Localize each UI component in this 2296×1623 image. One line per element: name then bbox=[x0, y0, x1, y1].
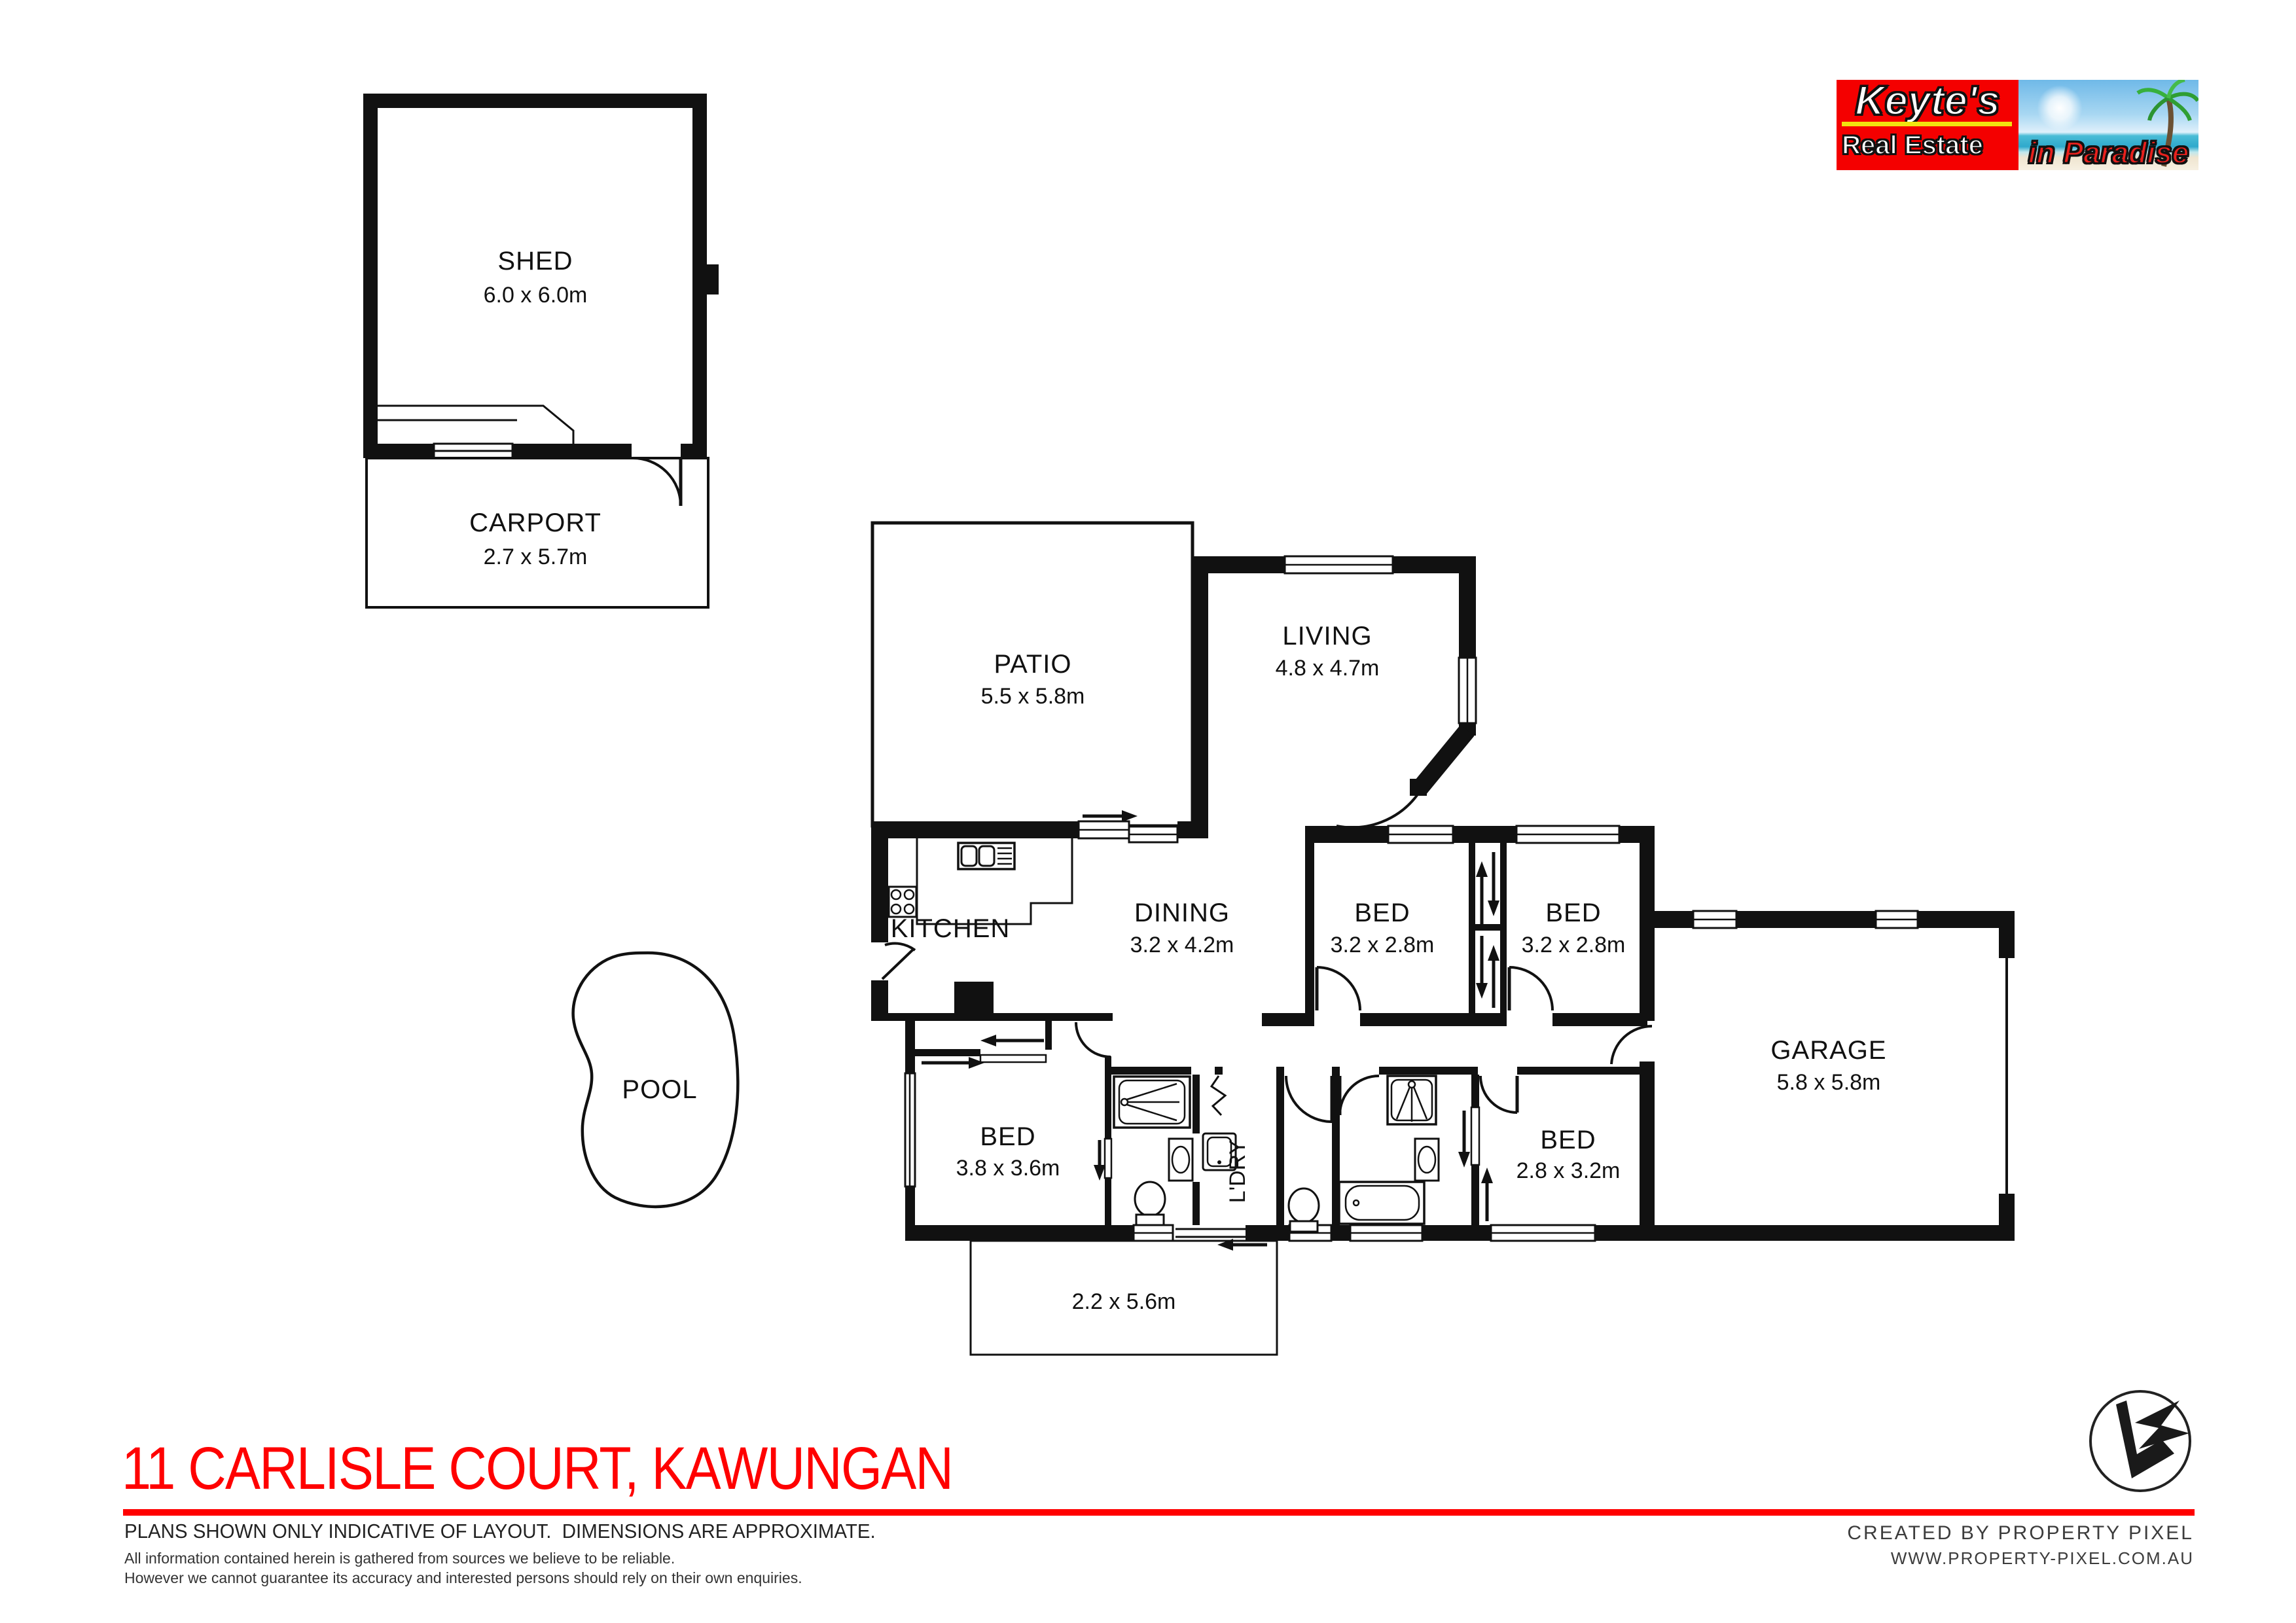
room-dims-bed1: 3.2 x 2.8m bbox=[1331, 933, 1435, 957]
disclaimer-note2: However we cannot guarantee its accuracy… bbox=[124, 1569, 802, 1587]
room-label-bed4: BED bbox=[1540, 1126, 1596, 1154]
bed4-robe-doors-icon bbox=[1471, 1107, 1479, 1165]
room-label-bed1: BED bbox=[1354, 899, 1410, 927]
laundry-slider-icon bbox=[1211, 1076, 1225, 1115]
room-label-dining: DINING bbox=[1134, 899, 1230, 927]
shower2-icon bbox=[1388, 1076, 1436, 1124]
robe-arrow-3-icon bbox=[1476, 936, 1488, 999]
shed-workbench-icon bbox=[378, 406, 573, 444]
vanity2-icon bbox=[1415, 1139, 1439, 1181]
credit-created-by: CREATED BY PROPERTY PIXEL bbox=[1539, 1522, 2194, 1544]
room-label-pool: POOL bbox=[622, 1075, 697, 1104]
bath2-robe-arrow-icon bbox=[1458, 1111, 1470, 1168]
bath1-window-icon bbox=[1134, 1225, 1173, 1241]
garage-window2-icon bbox=[1876, 911, 1918, 928]
bed2-door-arc-icon bbox=[1509, 967, 1552, 1010]
room-dims-porch: 2.2 x 5.6m bbox=[1072, 1289, 1176, 1314]
hall-arrow-left-icon bbox=[980, 1035, 1044, 1046]
patio-entry-arrow-icon bbox=[1083, 810, 1138, 822]
bed3-robe-arrow-icon bbox=[1094, 1140, 1105, 1181]
bath2-window-icon bbox=[1350, 1225, 1422, 1241]
divider-line bbox=[123, 1509, 2195, 1516]
hall-arrow-right-icon bbox=[922, 1057, 984, 1069]
room-dims-dining: 3.2 x 4.2m bbox=[1130, 933, 1234, 957]
room-label-bed2: BED bbox=[1545, 899, 1601, 927]
room-label-kitchen: KITCHEN bbox=[891, 914, 1011, 943]
agency-logo-redbox: Keyte's Real Estate bbox=[1837, 80, 2018, 170]
shed-door-opening bbox=[632, 444, 681, 458]
room-label-living: LIVING bbox=[1282, 622, 1372, 651]
agency-beach-image: in Paradise bbox=[2018, 80, 2198, 170]
bathtub-icon bbox=[1339, 1182, 1424, 1224]
room-dims-bed3: 3.8 x 3.6m bbox=[956, 1156, 1060, 1181]
room-label-garage: GARAGE bbox=[1770, 1036, 1886, 1065]
bed1-door-arc-icon bbox=[1317, 967, 1360, 1010]
agency-underline bbox=[1842, 122, 2012, 126]
shed-window-icon bbox=[703, 264, 719, 294]
property-pixel-logo-icon bbox=[2090, 1391, 2190, 1491]
room-dims-bed2: 3.2 x 2.8m bbox=[1522, 933, 1626, 957]
robe-arrow-4-icon bbox=[1488, 945, 1499, 1008]
toilet1-icon bbox=[1135, 1182, 1165, 1225]
room-dims-bed4: 2.8 x 3.2m bbox=[1516, 1158, 1621, 1183]
vanity1-icon bbox=[1169, 1139, 1193, 1181]
disclaimer-note1: All information contained herein is gath… bbox=[124, 1550, 675, 1567]
room-dims-shed: 6.0 x 6.0m bbox=[484, 283, 588, 308]
toilet2-icon bbox=[1289, 1188, 1319, 1232]
agency-subtitle: Real Estate bbox=[1840, 131, 1984, 160]
page-title: 11 CARLISLE COURT, KAWUNGAN bbox=[122, 1435, 952, 1503]
floorplan-page: SHED 6.0 x 6.0m CARPORT 2.7 x 5.7m PATIO… bbox=[0, 0, 2296, 1623]
bed1-window-icon bbox=[1388, 826, 1453, 843]
room-label-shed: SHED bbox=[497, 247, 573, 276]
agency-logo: Keyte's Real Estate in Paradise bbox=[1837, 80, 2198, 170]
shed-door-arc-icon bbox=[633, 458, 681, 506]
room-label-bed3: BED bbox=[980, 1122, 1035, 1151]
kitchen-door-arc-icon bbox=[885, 944, 915, 950]
bed3-door-arc-icon bbox=[1076, 1022, 1111, 1057]
disclaimer-main: PLANS SHOWN ONLY INDICATIVE OF LAYOUT. D… bbox=[124, 1520, 876, 1543]
bed2-window-icon bbox=[1516, 826, 1619, 843]
stove-icon bbox=[889, 887, 916, 917]
kitchen-sink-icon bbox=[958, 843, 1014, 869]
room-dims-garage: 5.8 x 5.8m bbox=[1777, 1070, 1881, 1095]
room-dims-carport: 2.7 x 5.7m bbox=[484, 544, 588, 569]
bath2-door-arc-icon bbox=[1340, 1076, 1379, 1115]
bed4-door-arc-icon bbox=[1480, 1076, 1517, 1113]
room-label-laundry: L'DRY bbox=[1225, 1140, 1250, 1204]
garage-hall-door-arc-icon bbox=[1611, 1026, 1652, 1064]
bed4-window-icon bbox=[1491, 1225, 1595, 1241]
living-side-window-icon bbox=[1459, 658, 1476, 723]
shed-bottom-window-icon bbox=[434, 444, 512, 458]
floor-plan-drawing: SHED 6.0 x 6.0m CARPORT 2.7 x 5.7m PATIO… bbox=[0, 0, 2296, 1623]
room-label-carport: CARPORT bbox=[469, 508, 601, 537]
living-door-arc-icon bbox=[1336, 794, 1418, 827]
robe-arrow-2-icon bbox=[1476, 861, 1488, 924]
credit-website: WWW.PROPERTY-PIXEL.COM.AU bbox=[1539, 1548, 2194, 1569]
bed3-window-icon bbox=[905, 1073, 915, 1186]
garage-window1-icon bbox=[1693, 911, 1736, 928]
agency-tagline: in Paradise bbox=[2018, 135, 2198, 170]
room-label-patio: PATIO bbox=[994, 650, 1071, 679]
bed3-robe-doors-icon bbox=[1105, 1139, 1111, 1178]
wc-door-arc-icon bbox=[1286, 1076, 1332, 1122]
room-dims-patio: 5.5 x 5.8m bbox=[981, 684, 1085, 709]
robe-arrow-1-icon bbox=[1488, 852, 1499, 916]
shower1-icon bbox=[1114, 1077, 1190, 1128]
room-dims-living: 4.8 x 4.7m bbox=[1276, 656, 1380, 681]
bed4-robe-arrow-icon bbox=[1481, 1168, 1493, 1221]
agency-name: Keyte's bbox=[1843, 77, 2012, 124]
